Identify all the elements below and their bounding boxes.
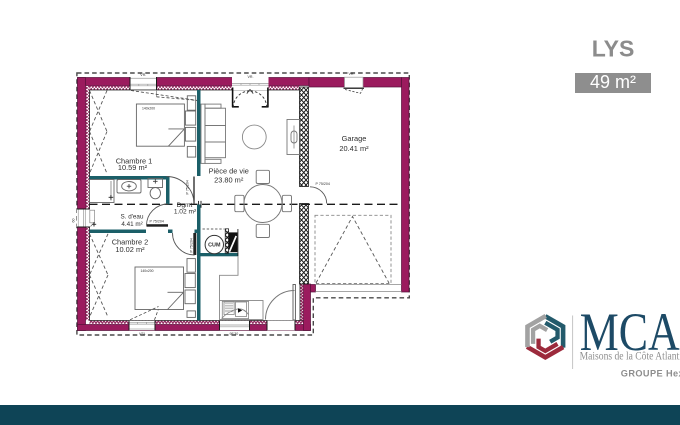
svg-text:Maisons de la Côte Atlantique: Maisons de la Côte Atlantique <box>580 351 680 363</box>
svg-text:P 75/204: P 75/204 <box>316 182 330 186</box>
svg-text:9F.30: 9F.30 <box>230 332 239 336</box>
svg-text:10.02 m²: 10.02 m² <box>115 245 145 254</box>
svg-text:VSL: VSL <box>139 332 146 336</box>
svg-text:P 75/204: P 75/204 <box>189 238 193 252</box>
svg-text:Pièce de vie: Pièce de vie <box>209 167 249 176</box>
svg-text:CUM: CUM <box>208 243 221 249</box>
svg-text:S. d'eau: S. d'eau <box>121 213 144 220</box>
svg-text:140x200: 140x200 <box>142 106 155 110</box>
svg-text:20.41 m²: 20.41 m² <box>339 144 369 153</box>
svg-text:Garage: Garage <box>342 134 367 143</box>
svg-text:LYS: LYS <box>592 36 635 62</box>
svg-text:P 75/204: P 75/204 <box>186 180 190 194</box>
svg-text:GROUPE HexaOm: GROUPE HexaOm <box>621 368 680 378</box>
svg-text:VR.: VR. <box>248 75 254 79</box>
svg-text:1.02 m²: 1.02 m² <box>174 209 197 216</box>
svg-text:4.41 m²: 4.41 m² <box>121 221 142 228</box>
svg-text:VR.: VR. <box>349 72 355 76</box>
svg-text:23.80 m²: 23.80 m² <box>214 176 244 185</box>
svg-text:10.59 m²: 10.59 m² <box>118 163 148 172</box>
svg-text:49 m²: 49 m² <box>590 72 636 92</box>
svg-text:60: 60 <box>72 219 76 223</box>
svg-text:VR.: VR. <box>140 73 146 77</box>
svg-text:140x200: 140x200 <box>141 269 154 273</box>
svg-text:P 75/204: P 75/204 <box>150 220 164 224</box>
